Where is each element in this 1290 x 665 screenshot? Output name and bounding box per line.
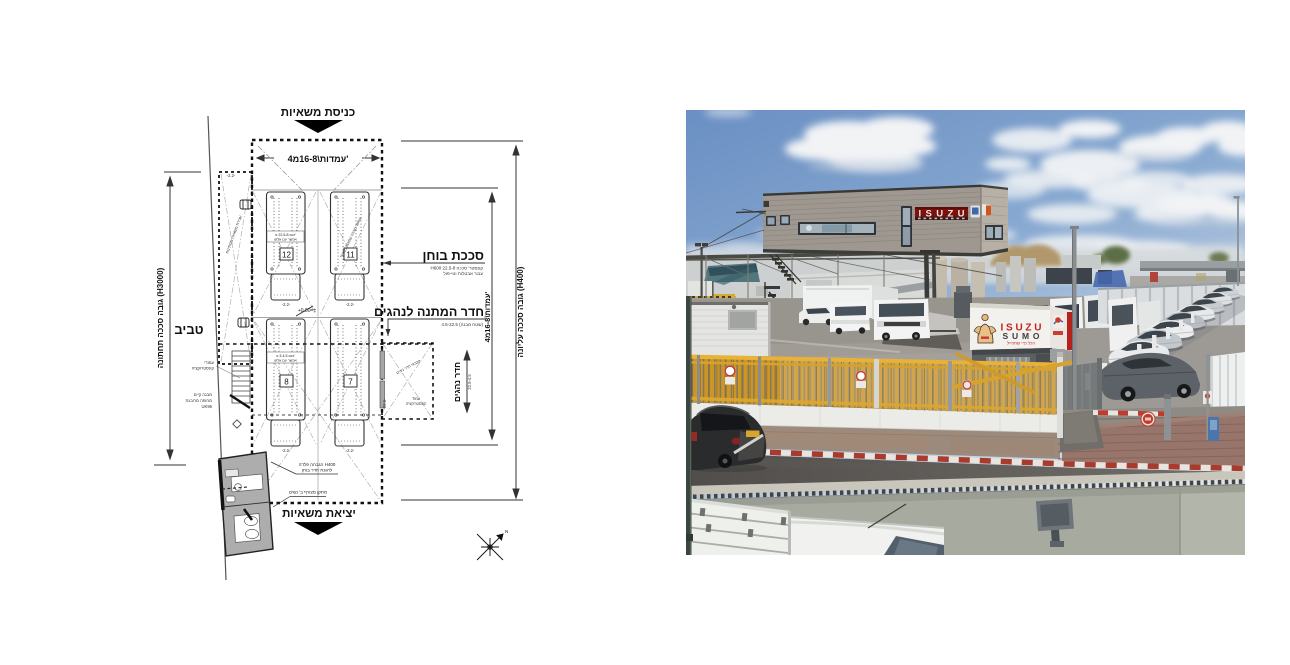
svg-text:הגבהה פלדה H400: הגבהה פלדה H400 xyxy=(299,462,336,467)
svg-text:כניסת משאיות: כניסת משאיות xyxy=(281,107,355,119)
svg-text:סככת בוחן: סככת בוחן xyxy=(422,248,484,263)
svg-text:חדר המתנה לנהגים: חדר המתנה לנהגים xyxy=(374,305,484,319)
svg-text:4עמדות\16-8מ': 4עמדות\16-8מ' xyxy=(483,291,492,342)
svg-text:מחופה מרובגת: מחופה מרובגת xyxy=(186,398,213,403)
svg-text:-22.5-: -22.5- xyxy=(382,398,387,410)
svg-text:אפשר עם אלקו: אפשר עם אלקו xyxy=(274,238,297,242)
svg-text:יציאת משאיות: יציאת משאיות xyxy=(282,508,356,520)
svg-text:22.5-4.5: 22.5-4.5 xyxy=(467,374,472,390)
svg-text:טביב: טביב xyxy=(174,322,203,337)
svg-text:גובה סככה עליונה (H400): גובה סככה עליונה (H400) xyxy=(516,266,525,357)
svg-text:קונסטרוקציה: קונסטרוקציה xyxy=(192,366,215,371)
svg-text:8: 8 xyxy=(284,378,289,387)
svg-text:דגם 3-4.5 ט': דגם 3-4.5 ט' xyxy=(276,354,295,358)
svg-text:UK96: UK96 xyxy=(202,404,213,409)
svg-text:עצירת משאיות ממתינות: עצירת משאיות ממתינות xyxy=(224,214,243,254)
svg-text:עמודי: עמודי xyxy=(204,360,214,365)
svg-text:מתקן מצורף ב' נשים: מתקן מצורף ב' נשים xyxy=(289,490,327,495)
svg-text:עמוד: עמוד xyxy=(412,397,421,401)
svg-text:-2.2-: -2.2- xyxy=(282,448,291,453)
svg-text:מבנה קיים: מבנה קיים xyxy=(194,392,212,397)
svg-text:הכל כדי שתחייל: הכל כדי שתחייל xyxy=(1007,341,1035,346)
svg-text:SUMO: SUMO xyxy=(1003,331,1040,341)
svg-text:11: 11 xyxy=(346,251,355,260)
svg-text:קונסטרוקציה: קונסטרוקציה xyxy=(406,402,427,406)
svg-text:קצבאי חדר ניבים: קצבאי חדר ניבים xyxy=(396,359,422,375)
svg-text:אפשר עם אלקו: אפשר עם אלקו xyxy=(274,359,297,363)
svg-text:חדר נהגים: חדר נהגים xyxy=(452,362,462,402)
svg-text:12: 12 xyxy=(282,251,291,260)
svg-text:גובה סככה תחתונה (H3000): גובה סככה תחתונה (H3000) xyxy=(156,267,165,368)
svg-text:-2.2-: -2.2- xyxy=(282,302,291,307)
svg-text:H600 קונסטר' סככה 22.5-8: H600 קונסטר' סככה 22.5-8 xyxy=(431,266,484,271)
svg-text:4עמדות\16-8מ': 4עמדות\16-8מ' xyxy=(288,154,349,164)
svg-text:עבור אבטלות וטי-פול: עבור אבטלות וטי-פול xyxy=(443,271,483,276)
svg-text:דגם 22.5-8 ט': דגם 22.5-8 ט' xyxy=(275,233,296,237)
svg-text:להגנת חדר בוחן: להגנת חדר בוחן xyxy=(302,468,333,473)
svg-text:-2.2-: -2.2- xyxy=(346,302,355,307)
svg-text:-2.2-: -2.2- xyxy=(227,173,236,178)
svg-text:N: N xyxy=(505,529,508,534)
svg-text:7: 7 xyxy=(348,378,353,387)
svg-text:4.5-22.5 (שטח מבנה): 4.5-22.5 (שטח מבנה) xyxy=(441,322,483,327)
svg-text:-2.2-: -2.2- xyxy=(346,448,355,453)
